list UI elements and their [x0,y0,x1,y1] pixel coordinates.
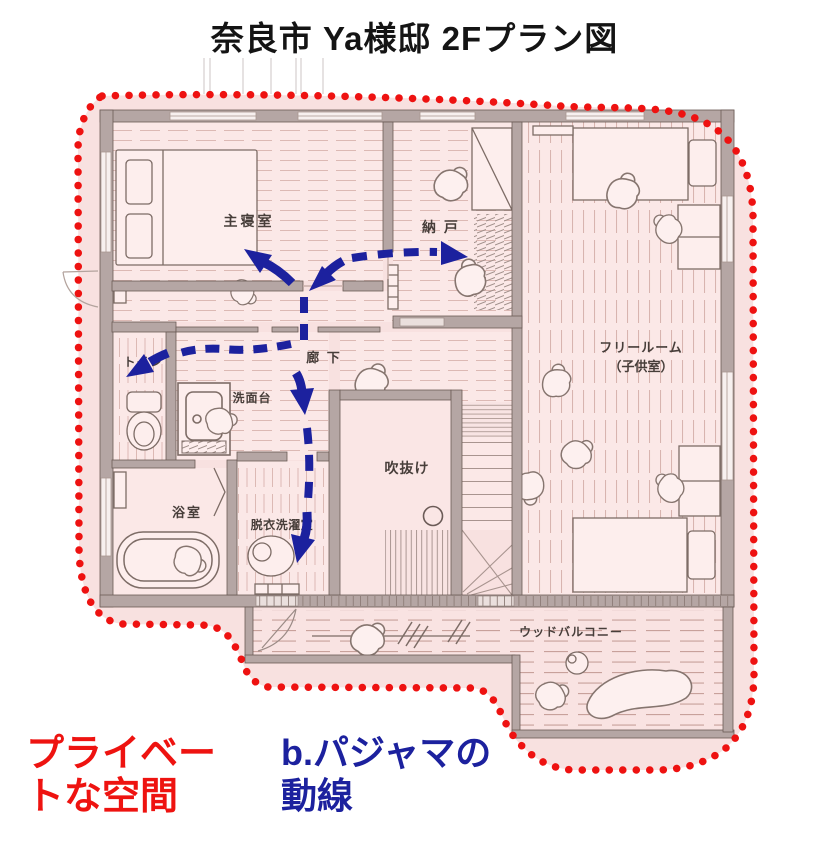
label-washstand: 洗面台 [232,390,271,405]
flow-down-shaft-2 [304,512,307,539]
label-wood-balcony: ウッドバルコニー [519,625,623,639]
label-storage: 納 戸 [422,219,460,235]
private-space-caption: プライベー トな空間 [26,733,216,819]
kids-shelf [533,126,573,135]
label-free-room-1: フリールーム [599,340,683,355]
stair-rail [385,530,451,595]
private-space-caption-line2: トな空間 [26,776,216,819]
pillow [126,160,152,204]
flow-dash-vertical-mid [307,428,309,500]
balcony-wall [245,655,515,663]
private-space-caption-line1: プライベー [26,733,216,776]
pillow [688,531,715,579]
stairs-steps [462,437,512,530]
balcony-floor-upper [250,610,731,655]
pajama-flow-caption-line1: b.パジャマの [281,731,491,774]
balcony-wall [512,730,734,738]
balcony-ball [566,652,588,674]
stairs-upper-flight [458,402,512,437]
label-bathroom: 浴室 [172,505,202,520]
toilet-fixture [127,392,161,450]
balcony-wall [245,607,253,659]
bath-shelf [114,472,126,508]
dimension-ticks [204,58,323,94]
bathtub [117,532,219,588]
balcony-fence-ticks [253,596,731,606]
label-master-bedroom: 主寝室 [224,213,275,229]
balcony-wall [723,607,733,732]
kids-desk-top [678,205,720,269]
label-void: 吹抜け [385,460,430,476]
screenshot-root: 主寝室 納 戸 廊 下 トイレ 洗面台 浴室 脱衣洗濯室 吹抜け フリールーム … [0,0,829,860]
pillow [689,140,716,186]
master-bed [116,150,257,265]
pajama-flow-caption-line2: 動線 [281,774,491,817]
page-title: 奈良市 Ya様邸 2Fプラン図 [211,12,618,60]
label-free-room-2: （子供室） [608,359,673,374]
attic-ladder [388,265,398,309]
void-floor-lower [340,530,385,595]
pillow [126,214,152,258]
pajama-flow-caption: b.パジャマの 動線 [281,731,491,817]
balcony-wall [512,655,520,738]
kids-desk-bottom [679,446,720,516]
label-hallway: 廊 下 [306,350,342,365]
